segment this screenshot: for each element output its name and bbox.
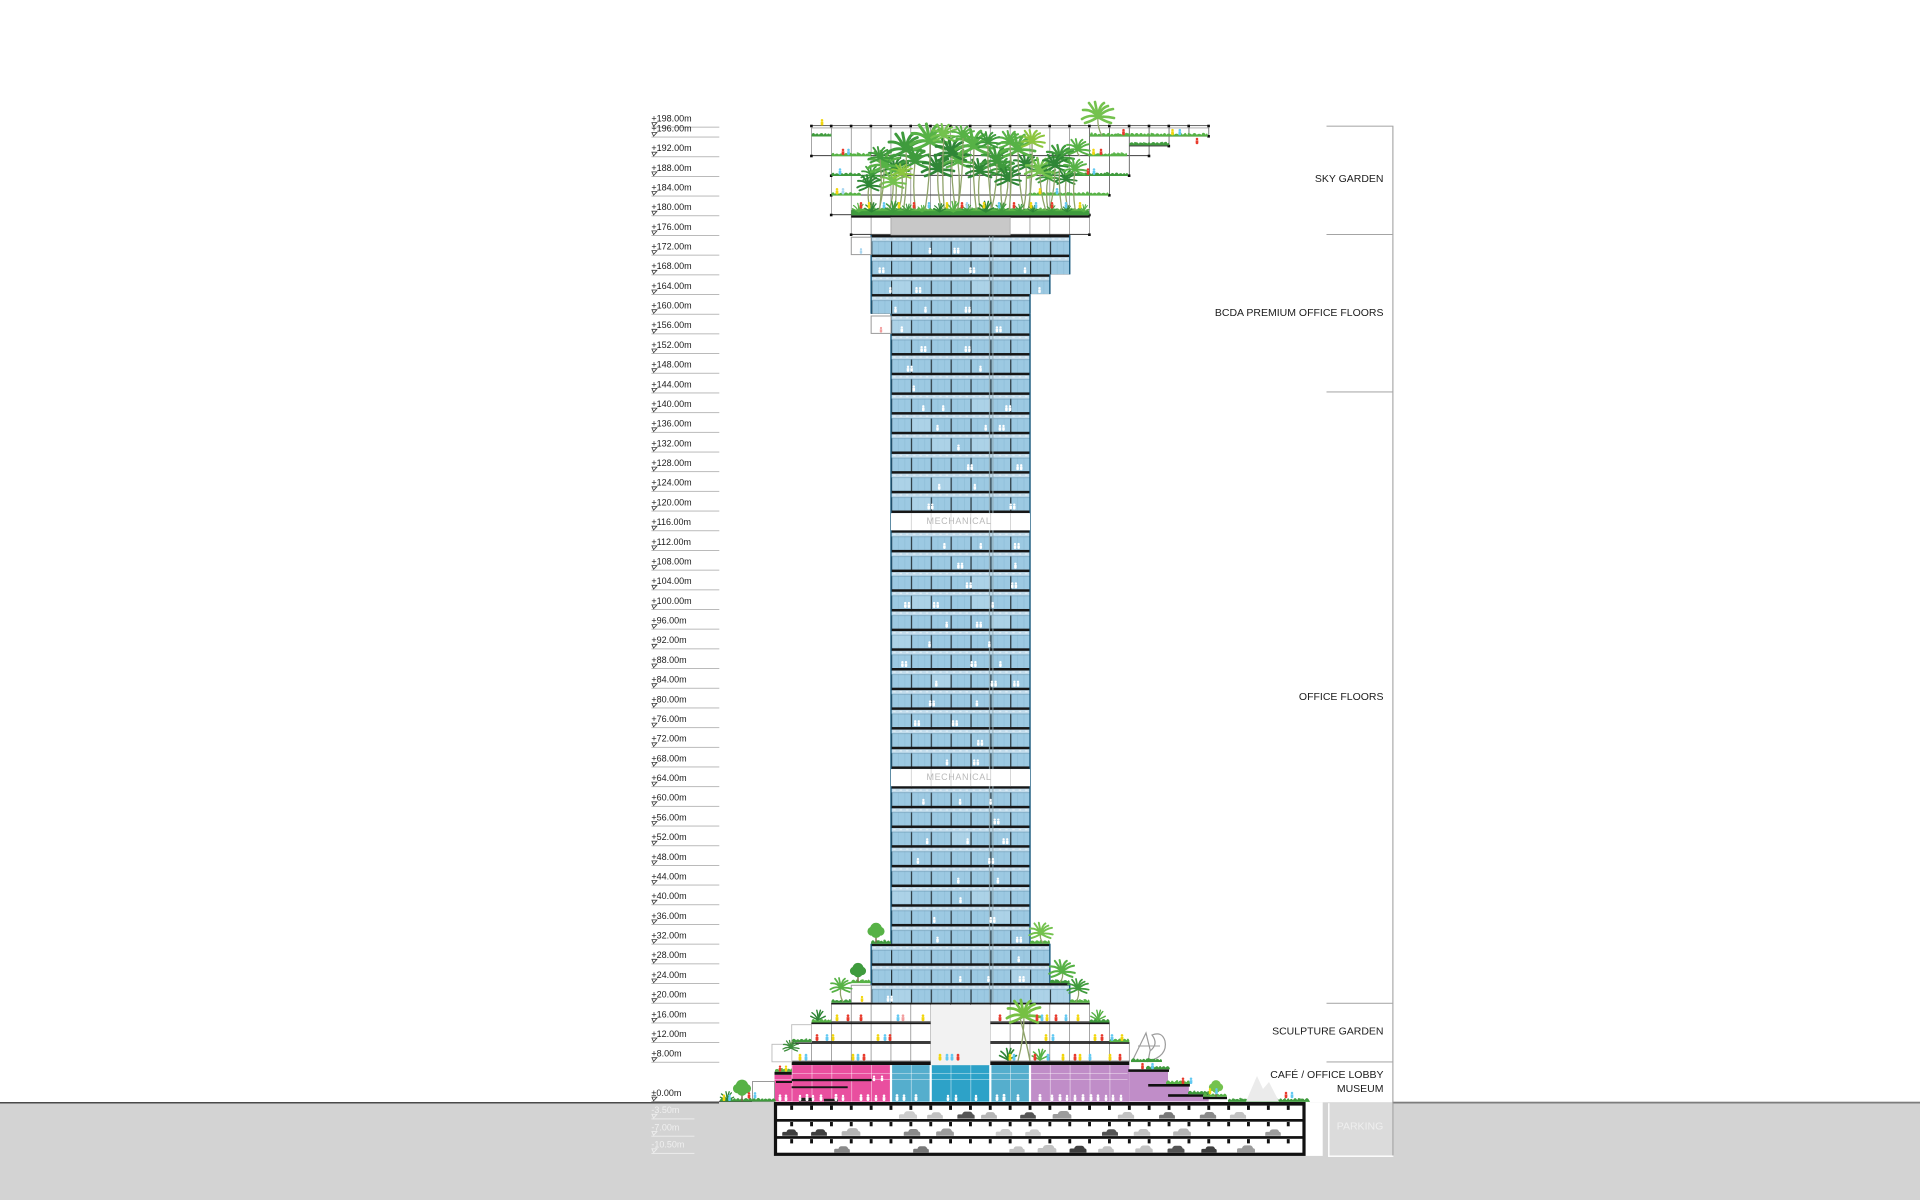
svg-text:+76.00m: +76.00m xyxy=(651,714,686,724)
svg-text:MECHANICAL: MECHANICAL xyxy=(926,772,991,782)
svg-text:+92.00m: +92.00m xyxy=(651,635,686,645)
svg-text:+28.00m: +28.00m xyxy=(651,950,686,960)
svg-text:+24.00m: +24.00m xyxy=(651,970,686,980)
svg-text:+96.00m: +96.00m xyxy=(651,616,686,626)
svg-text:+144.00m: +144.00m xyxy=(651,379,691,389)
svg-text:+148.00m: +148.00m xyxy=(651,360,691,370)
svg-text:+152.00m: +152.00m xyxy=(651,340,691,350)
svg-text:+116.00m: +116.00m xyxy=(651,517,691,527)
svg-text:+124.00m: +124.00m xyxy=(651,478,691,488)
svg-text:+64.00m: +64.00m xyxy=(651,773,686,783)
svg-text:+80.00m: +80.00m xyxy=(651,694,686,704)
svg-text:+140.00m: +140.00m xyxy=(651,399,691,409)
svg-text:+160.00m: +160.00m xyxy=(651,301,691,311)
svg-text:+196.00m: +196.00m xyxy=(651,123,691,133)
svg-text:+128.00m: +128.00m xyxy=(651,458,691,468)
svg-text:PARKING: PARKING xyxy=(1337,1121,1383,1133)
svg-text:+164.00m: +164.00m xyxy=(651,281,691,291)
svg-text:OFFICE FLOORS: OFFICE FLOORS xyxy=(1299,691,1384,703)
svg-text:+112.00m: +112.00m xyxy=(651,537,691,547)
svg-text:CAFÉ / OFFICE LOBBY: CAFÉ / OFFICE LOBBY xyxy=(1270,1068,1383,1081)
svg-text:+52.00m: +52.00m xyxy=(651,832,686,842)
svg-text:+60.00m: +60.00m xyxy=(651,793,686,803)
svg-text:+8.00m: +8.00m xyxy=(651,1049,681,1059)
svg-text:-3.50m: -3.50m xyxy=(651,1105,679,1115)
svg-text:+172.00m: +172.00m xyxy=(651,242,691,252)
svg-text:MUSEUM: MUSEUM xyxy=(1337,1083,1384,1095)
svg-text:+136.00m: +136.00m xyxy=(651,419,691,429)
svg-text:+120.00m: +120.00m xyxy=(651,497,691,507)
svg-text:+44.00m: +44.00m xyxy=(651,871,686,881)
svg-text:+184.00m: +184.00m xyxy=(651,182,691,192)
svg-text:SKY GARDEN: SKY GARDEN xyxy=(1315,173,1384,185)
svg-text:-7.00m: -7.00m xyxy=(651,1123,679,1133)
svg-text:+56.00m: +56.00m xyxy=(651,812,686,822)
svg-text:+72.00m: +72.00m xyxy=(651,734,686,744)
svg-text:BCDA PREMIUM OFFICE FLOORS: BCDA PREMIUM OFFICE FLOORS xyxy=(1215,307,1384,319)
svg-text:+198.00m: +198.00m xyxy=(651,114,691,124)
svg-text:+84.00m: +84.00m xyxy=(651,675,686,685)
svg-text:+68.00m: +68.00m xyxy=(651,753,686,763)
svg-text:+192.00m: +192.00m xyxy=(651,143,691,153)
svg-text:+48.00m: +48.00m xyxy=(651,852,686,862)
svg-text:-10.50m: -10.50m xyxy=(651,1140,684,1150)
svg-text:+32.00m: +32.00m xyxy=(651,931,686,941)
svg-text:MECHANICAL: MECHANICAL xyxy=(926,516,991,526)
svg-text:+100.00m: +100.00m xyxy=(651,596,691,606)
svg-text:±0.00m: ±0.00m xyxy=(651,1088,681,1098)
svg-text:+168.00m: +168.00m xyxy=(651,261,691,271)
svg-text:+20.00m: +20.00m xyxy=(651,990,686,1000)
svg-text:+12.00m: +12.00m xyxy=(651,1029,686,1039)
svg-text:+16.00m: +16.00m xyxy=(651,1009,686,1019)
svg-text:+180.00m: +180.00m xyxy=(651,202,691,212)
svg-text:+176.00m: +176.00m xyxy=(651,222,691,232)
svg-text:+40.00m: +40.00m xyxy=(651,891,686,901)
svg-text:+88.00m: +88.00m xyxy=(651,655,686,665)
svg-text:SCULPTURE GARDEN: SCULPTURE GARDEN xyxy=(1272,1026,1383,1038)
svg-text:+108.00m: +108.00m xyxy=(651,557,691,567)
svg-text:+156.00m: +156.00m xyxy=(651,320,691,330)
svg-text:+104.00m: +104.00m xyxy=(651,576,691,586)
svg-text:+36.00m: +36.00m xyxy=(651,911,686,921)
svg-text:+132.00m: +132.00m xyxy=(651,438,691,448)
svg-text:+188.00m: +188.00m xyxy=(651,163,691,173)
